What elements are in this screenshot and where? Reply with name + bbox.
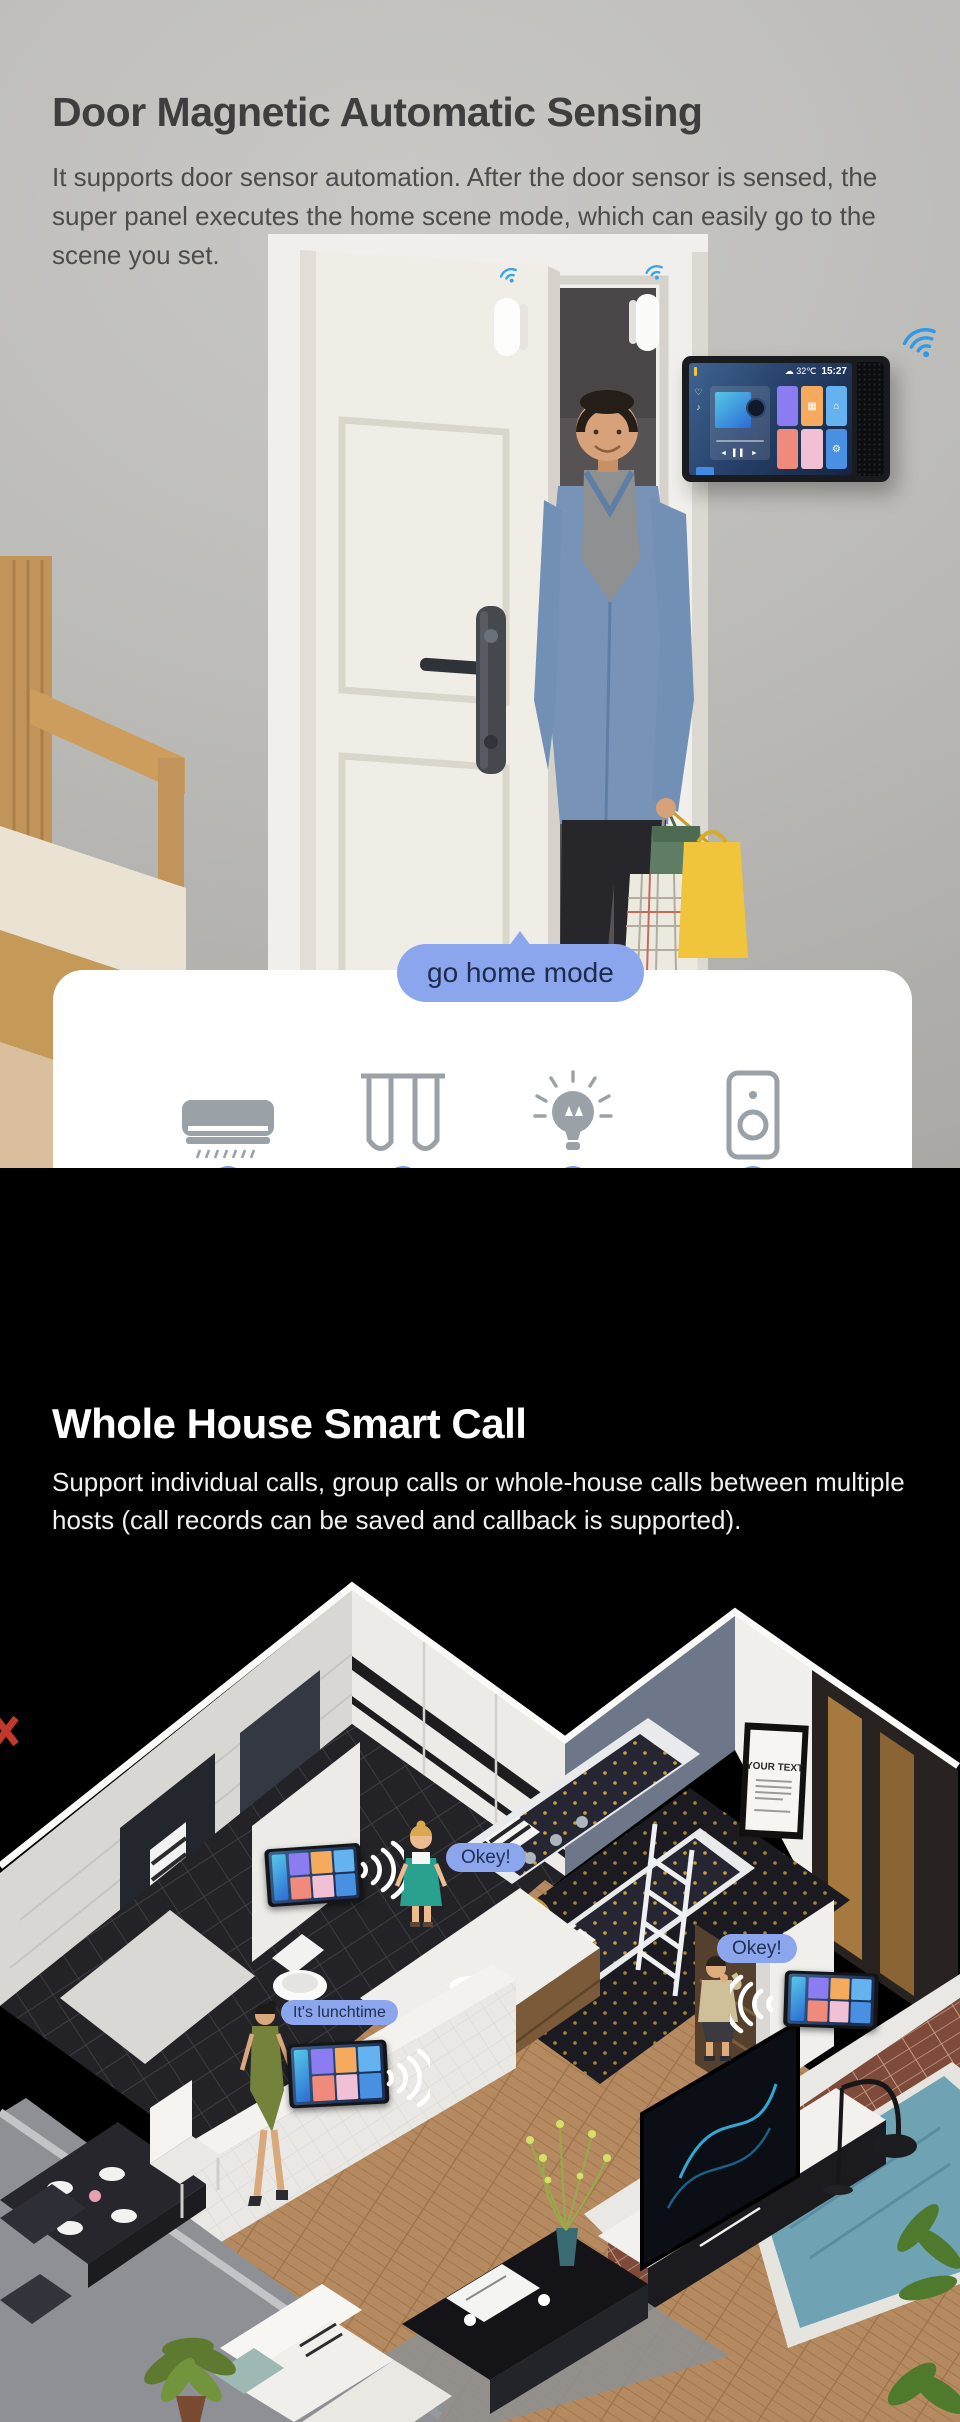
step-curtains: open curtains — [310, 1056, 496, 1168]
panel-temperature: 32℃ — [796, 366, 816, 376]
air-conditioner-icon — [135, 1056, 321, 1162]
indoor-panel-screen — [268, 1846, 359, 1904]
your-text-poster: YOUR TEXT — [739, 1722, 809, 1839]
panel-blue-button — [696, 467, 714, 475]
indoor-panel — [286, 2039, 389, 2108]
panel-status-bar: ☁ 32℃ 15:27 — [689, 363, 852, 380]
album-art — [271, 1854, 288, 1901]
indoor-panel-screen — [291, 2043, 386, 2106]
speaker-icon — [660, 1056, 846, 1162]
light-bulb-icon — [480, 1056, 666, 1162]
step-music: turn on music — [660, 1056, 846, 1168]
panel-side-rail: ♡♪ — [691, 385, 706, 415]
go-home-mode-bubble: go home mode — [397, 944, 644, 1002]
panel-app-tiles — [288, 1849, 356, 1899]
apps-tile: ▦ — [801, 386, 822, 426]
sound-waves-icon — [384, 2048, 430, 2108]
step-lights: Turn on the living room lights — [480, 1056, 666, 1168]
indoor-panel-screen — [787, 1974, 875, 2027]
panel-time: 15:27 — [821, 366, 847, 377]
indoor-panel — [264, 1843, 364, 1908]
step-ac: Turn on the A/C — [135, 1056, 321, 1168]
home-tile: ⌂ — [826, 386, 847, 426]
door-section-title: Door Magnetic Automatic Sensing — [52, 89, 702, 136]
music-player-card: ◄ ▌▌ ► — [710, 386, 770, 460]
watermark-fragment — [0, 1718, 16, 1744]
vinyl-icon — [746, 398, 766, 418]
speech-bubble: Okey! — [446, 1843, 526, 1872]
call-section-title: Whole House Smart Call — [52, 1400, 526, 1448]
curtains-icon — [310, 1056, 496, 1162]
speech-bubble: Okey! — [717, 1934, 797, 1963]
speech-bubble: It's lunchtime — [281, 2000, 398, 2025]
wall-panel-screen: ☁ 32℃ 15:27 ♡♪ ◄ ▌▌ ► ▦ ⌂ ⚙ — [689, 363, 852, 475]
panel-status-text: ☁ 32℃ 15:27 — [785, 366, 847, 377]
scene-tile — [777, 429, 798, 469]
progress-bar — [716, 440, 764, 442]
smart-call-section: Whole House Smart Call Support individua… — [0, 1168, 960, 2422]
door-section-description: It supports door sensor automation. Afte… — [52, 158, 936, 275]
settings-tile: ⚙ — [826, 429, 847, 469]
album-art — [790, 1977, 806, 2021]
panel-accent-tick — [694, 367, 697, 376]
panel-app-tiles: ▦ ⌂ ⚙ — [777, 386, 847, 469]
indoor-panel — [783, 1970, 879, 2029]
sound-waves-icon — [358, 1840, 404, 1900]
album-art — [294, 2050, 311, 2103]
wall-panel: ☁ 32℃ 15:27 ♡♪ ◄ ▌▌ ► ▦ ⌂ ⚙ — [682, 356, 890, 482]
sound-waves-icon — [730, 1974, 776, 2034]
gallery-tile — [801, 429, 822, 469]
bluetooth-tile — [777, 386, 798, 426]
panel-app-tiles — [311, 2046, 383, 2102]
door-sensing-section: Door Magnetic Automatic Sensing It suppo… — [0, 0, 960, 1168]
speaker-grille — [857, 362, 884, 476]
panel-app-tiles — [807, 1977, 871, 2023]
player-controls: ◄ ▌▌ ► — [710, 450, 770, 457]
